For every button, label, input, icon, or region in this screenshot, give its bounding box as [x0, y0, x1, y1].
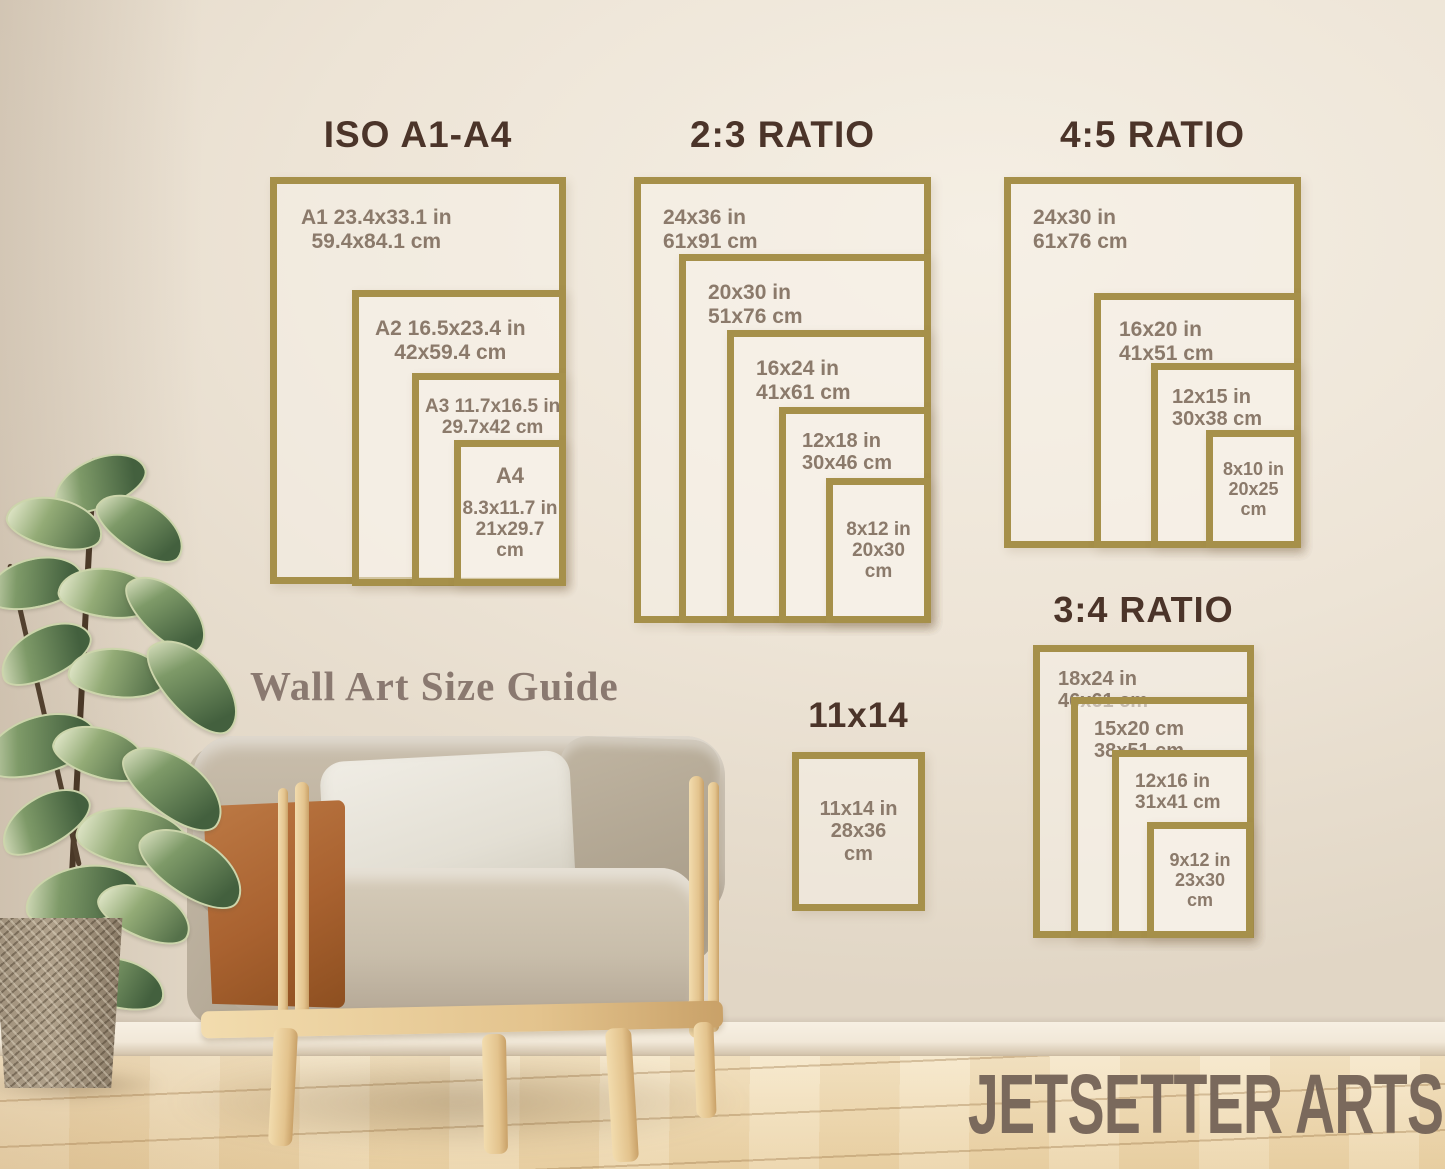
group-title-2-3: 2:3 RATIO [634, 114, 931, 156]
frame-11x14: 11x14 in 28x36 cm [792, 752, 925, 911]
frame-label-12x15: 12x15 in 30x38 cm [1172, 386, 1262, 431]
frame-label-20x30: 20x30 in 51x76 cm [708, 281, 803, 328]
frame-label-a3: A3 11.7x16.5 in 29.7x42 cm [425, 396, 560, 439]
frame-label-12x16: 12x16 in 31x41 cm [1135, 771, 1221, 814]
frame-label-a1: A1 23.4x33.1 in 59.4x84.1 cm [301, 206, 452, 253]
frame-label-24x30: 24x30 in 61x76 cm [1033, 206, 1128, 253]
plant-basket-pot [0, 918, 128, 1088]
chair-leg [482, 1034, 508, 1154]
frame-a4: A4 8.3x11.7 in 21x29.7 cm [454, 440, 566, 586]
frame-8x12: 8x12 in 20x30 cm [826, 478, 931, 623]
chair-wood-post [689, 776, 704, 1038]
chair-wood-post [708, 782, 719, 1032]
group-title-iso: ISO A1-A4 [270, 114, 566, 156]
armchair [185, 730, 733, 1166]
frame-label-11x14: 11x14 in 28x36 cm [820, 798, 898, 865]
group-title-11x14: 11x14 [786, 696, 931, 736]
chair-wood-post [295, 782, 309, 1018]
chair-floor-shadow [171, 1054, 746, 1150]
guide-caption: Wall Art Size Guide [250, 662, 645, 710]
frame-8x10: 8x10 in 20x25 cm [1206, 430, 1301, 548]
frame-label-a2: A2 16.5x23.4 in 42x59.4 cm [375, 317, 526, 364]
brand-watermark: JETSETTER ARTS [968, 1056, 1443, 1153]
frame-label-12x18: 12x18 in 30x46 cm [802, 430, 892, 475]
frame-label-16x20: 16x20 in 41x51 cm [1119, 318, 1214, 365]
potted-plant [0, 440, 250, 1120]
chair-wood-post [278, 788, 288, 1016]
chair-leg [693, 1022, 716, 1119]
group-title-3-4: 3:4 RATIO [1033, 589, 1254, 631]
wall-art-size-guide-scene: ISO A1-A4 A1 23.4x33.1 in 59.4x84.1 cm A… [0, 0, 1445, 1169]
frame-label-24x36: 24x36 in 61x91 cm [663, 206, 758, 253]
frame-label-8x10: 8x10 in 20x25 cm [1223, 459, 1284, 519]
frame-label-a4: A4 8.3x11.7 in 21x29.7 cm [462, 464, 557, 561]
frame-label-9x12: 9x12 in 23x30 cm [1169, 850, 1230, 910]
frame-label-16x24: 16x24 in 41x61 cm [756, 357, 851, 404]
group-title-4-5: 4:5 RATIO [1004, 114, 1301, 156]
frame-9x12: 9x12 in 23x30 cm [1147, 822, 1253, 938]
frame-label-8x12: 8x12 in 20x30 cm [846, 519, 910, 583]
